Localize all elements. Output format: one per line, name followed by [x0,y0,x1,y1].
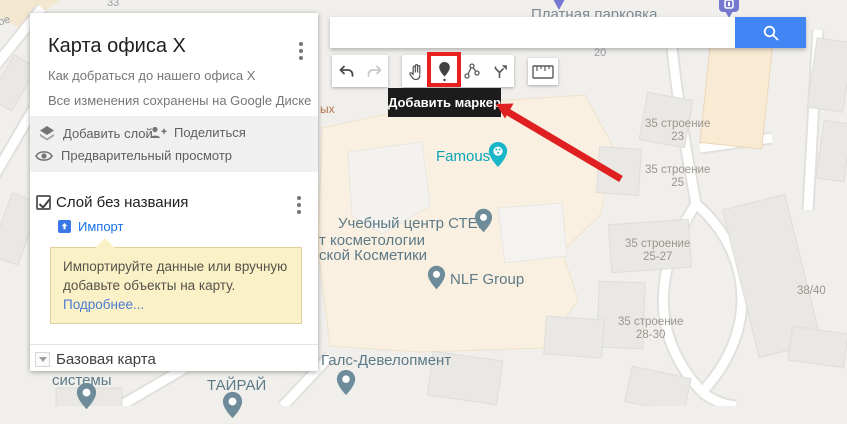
add-layer-label: Добавить слой [63,126,153,141]
base-map-row[interactable]: Базовая карта [30,351,318,371]
annotation-highlight-box [427,52,461,87]
map-label-20: 20 [594,47,606,59]
add-layer-button[interactable]: Добавить слой [38,125,153,141]
bld-line2: 25 [671,177,684,189]
preview-label: Предварительный просмотр [61,148,232,163]
layer-row: Слой без названия [30,193,318,217]
map-label-bld-25: 35 строение 25 [645,164,710,190]
draw-line-button[interactable] [458,55,486,87]
map-editor-panel: Карта офиса X Как добраться до нашего оф… [30,13,318,371]
map-label-famous[interactable]: Famous [436,148,490,165]
pan-tool-button[interactable] [402,55,430,87]
map-description[interactable]: Как добраться до нашего офиса X [48,68,255,83]
bld-line1: 35 строение [645,164,710,176]
bld-line2: 25-27 [643,251,672,263]
tooltip-add-marker: Добавить маркер [388,88,501,117]
preview-button[interactable]: Предварительный просмотр [34,148,232,163]
check-icon [38,198,51,210]
gals-pin-icon[interactable] [336,369,356,401]
undo-button[interactable] [332,55,360,87]
hint-learn-more-link[interactable]: Подробнее... [63,297,144,312]
map-building [498,203,567,263]
base-map-expand-button[interactable] [35,352,50,367]
layers-icon [38,125,56,141]
layer-menu-button[interactable] [294,193,304,217]
bld-line2: 28-30 [636,329,665,341]
eye-icon [34,149,54,163]
map-label-kosmetiki: ской Косметики [319,247,427,264]
map-label-gals[interactable]: Галс-Девелопмент [321,352,451,369]
import-button[interactable]: Импорт [58,219,123,234]
import-icon [58,220,71,233]
measure-button[interactable] [528,58,558,85]
undo-icon [337,62,356,81]
map-menu-button[interactable] [296,39,306,63]
stek-pin-icon[interactable] [474,208,493,238]
base-map-label: Базовая карта [56,351,156,368]
person-add-icon [148,125,167,140]
bld-line1: 35 строение [625,238,690,250]
bld-line2: 23 [671,131,684,143]
map-label-bld-38-40: 38/40 [797,285,826,298]
chevron-down-icon [39,357,47,362]
redo-icon [365,62,384,81]
layer-name[interactable]: Слой без названия [56,194,188,211]
save-status: Все изменения сохранены на Google Диске [48,93,311,108]
sistemy-pin-icon[interactable] [76,382,97,415]
redo-button[interactable] [360,55,388,87]
famous-pin-icon[interactable] [488,141,508,173]
pin-tip-icon [551,0,567,16]
hand-icon [407,62,426,81]
map-label-stek[interactable]: Учебный центр СТЕК [338,215,486,232]
map-label-nlf-group[interactable]: NLF Group [450,271,524,288]
map-search-bar [330,17,806,48]
search-button[interactable] [735,17,806,48]
ruler-icon [532,65,554,79]
bld-line1: 35 строение [618,316,683,328]
hint-text: Импортируйте данные или вручную добавьте… [63,259,287,293]
directions-icon [491,62,509,80]
share-button[interactable]: Поделиться [148,125,246,140]
search-icon [762,24,780,42]
import-hint-callout: Импортируйте данные или вручную добавьте… [50,247,302,324]
add-directions-button[interactable] [486,55,514,87]
polyline-icon [463,62,481,80]
map-label-street-fragment: ых [320,102,335,116]
divider [30,344,318,345]
panel-action-band: Добавить слой Поделиться Предварительный… [30,116,318,172]
map-search-input[interactable] [330,17,735,48]
bld-line1: 35 строение [645,118,710,130]
map-label-bld-28-30: 35 строение 28-30 [618,316,683,342]
layer-visibility-checkbox[interactable] [36,195,51,210]
share-label: Поделиться [174,125,246,140]
map-title[interactable]: Карта офиса X [48,35,186,58]
map-label-33: 33 [107,0,119,9]
map-label-bld-25-27: 35 строение 25-27 [625,238,690,264]
import-label: Импорт [78,219,123,234]
map-label-bld-23: 35 строение 23 [645,118,710,144]
nlf-pin-icon[interactable] [427,265,446,295]
tairai-pin-icon[interactable] [222,391,243,424]
